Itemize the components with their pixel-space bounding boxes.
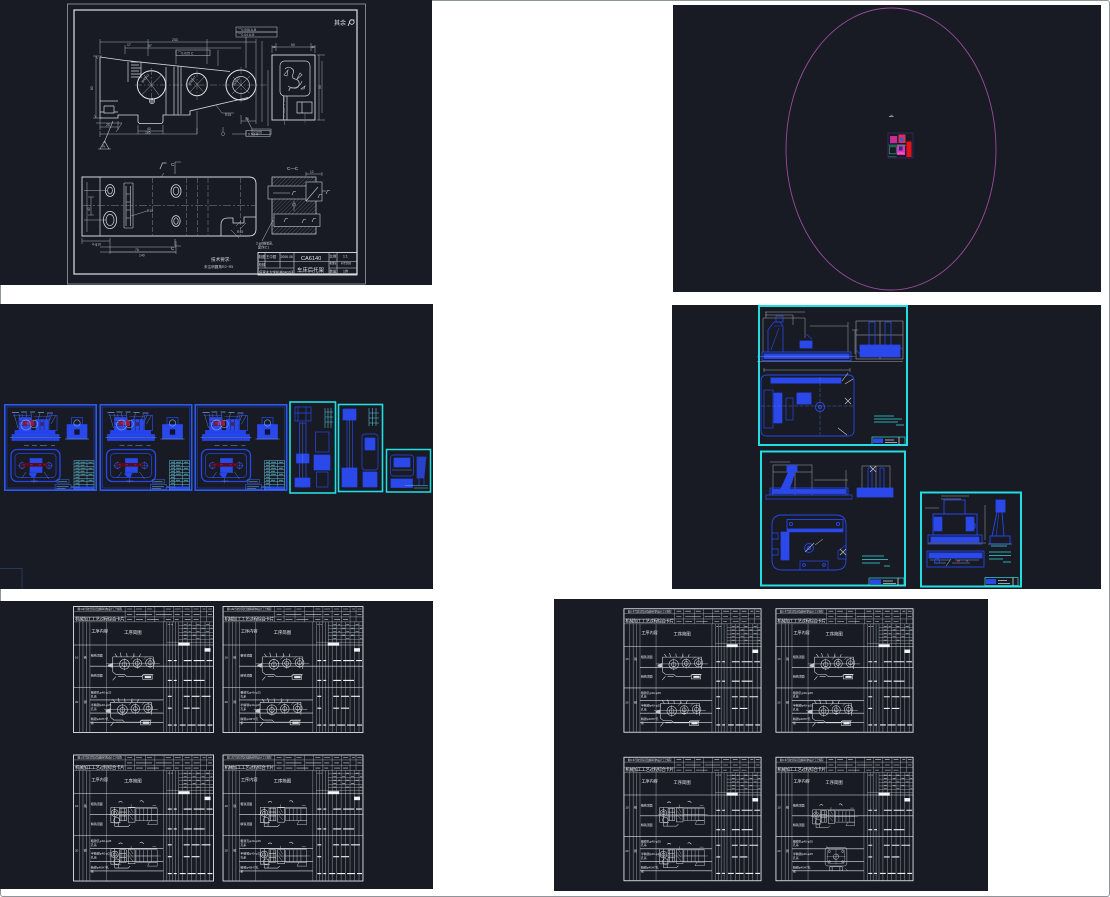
svg-text:塔里木大学机械0402班: 塔里木大学机械0402班 bbox=[259, 270, 294, 275]
svg-text:140: 140 bbox=[139, 254, 145, 258]
svg-text:HT200: HT200 bbox=[341, 262, 351, 266]
svg-text:φ30H7: φ30H7 bbox=[187, 75, 197, 85]
svg-text:185: 185 bbox=[145, 131, 151, 135]
svg-text:12: 12 bbox=[310, 170, 314, 174]
svg-text:⌒0.04 A-B: ⌒0.04 A-B bbox=[238, 32, 255, 37]
svg-text:⌒0.008 A-B: ⌒0.008 A-B bbox=[238, 27, 257, 32]
svg-text:76: 76 bbox=[135, 248, 139, 252]
svg-text:材料: 材料 bbox=[330, 261, 337, 266]
svg-text:4-φ10: 4-φ10 bbox=[92, 243, 101, 247]
svg-text:⌒0.025 C: ⌒0.025 C bbox=[178, 51, 194, 56]
svg-text:配作2:1: 配作2:1 bbox=[258, 245, 269, 250]
svg-text:0.02 A: 0.02 A bbox=[248, 133, 259, 137]
svg-text:王中银: 王中银 bbox=[266, 254, 277, 259]
svg-text:C: C bbox=[171, 162, 175, 167]
svg-text:未注明圆角R2~R5: 未注明圆角R2~R5 bbox=[204, 264, 233, 269]
svg-text:16: 16 bbox=[245, 117, 249, 121]
svg-text:55: 55 bbox=[318, 85, 322, 89]
svg-text:40: 40 bbox=[87, 207, 91, 211]
svg-text:数量: 数量 bbox=[330, 269, 337, 274]
svg-text:2006.06: 2006.06 bbox=[281, 255, 293, 259]
svg-text:C—C: C—C bbox=[287, 166, 299, 171]
svg-text:1:1: 1:1 bbox=[343, 255, 348, 259]
svg-text:R15: R15 bbox=[225, 113, 231, 117]
svg-text:技术要求:: 技术要求: bbox=[211, 256, 231, 263]
svg-text:比例: 比例 bbox=[330, 254, 337, 259]
svg-text:97: 97 bbox=[148, 44, 152, 48]
svg-text:1件: 1件 bbox=[343, 269, 349, 274]
svg-text:校核: 校核 bbox=[259, 262, 266, 267]
svg-text:17: 17 bbox=[127, 43, 131, 47]
svg-text:CA6140: CA6140 bbox=[301, 256, 321, 262]
svg-text:60: 60 bbox=[291, 43, 295, 47]
svg-text:R15: R15 bbox=[237, 230, 243, 234]
svg-text:A: A bbox=[102, 144, 105, 149]
svg-text:25: 25 bbox=[106, 123, 110, 127]
svg-text:60: 60 bbox=[90, 86, 94, 90]
svg-text:制图: 制图 bbox=[259, 254, 266, 259]
svg-text:其余: 其余 bbox=[334, 19, 346, 27]
svg-text:233: 233 bbox=[172, 38, 178, 42]
svg-text:车床后托架: 车床后托架 bbox=[297, 266, 325, 274]
